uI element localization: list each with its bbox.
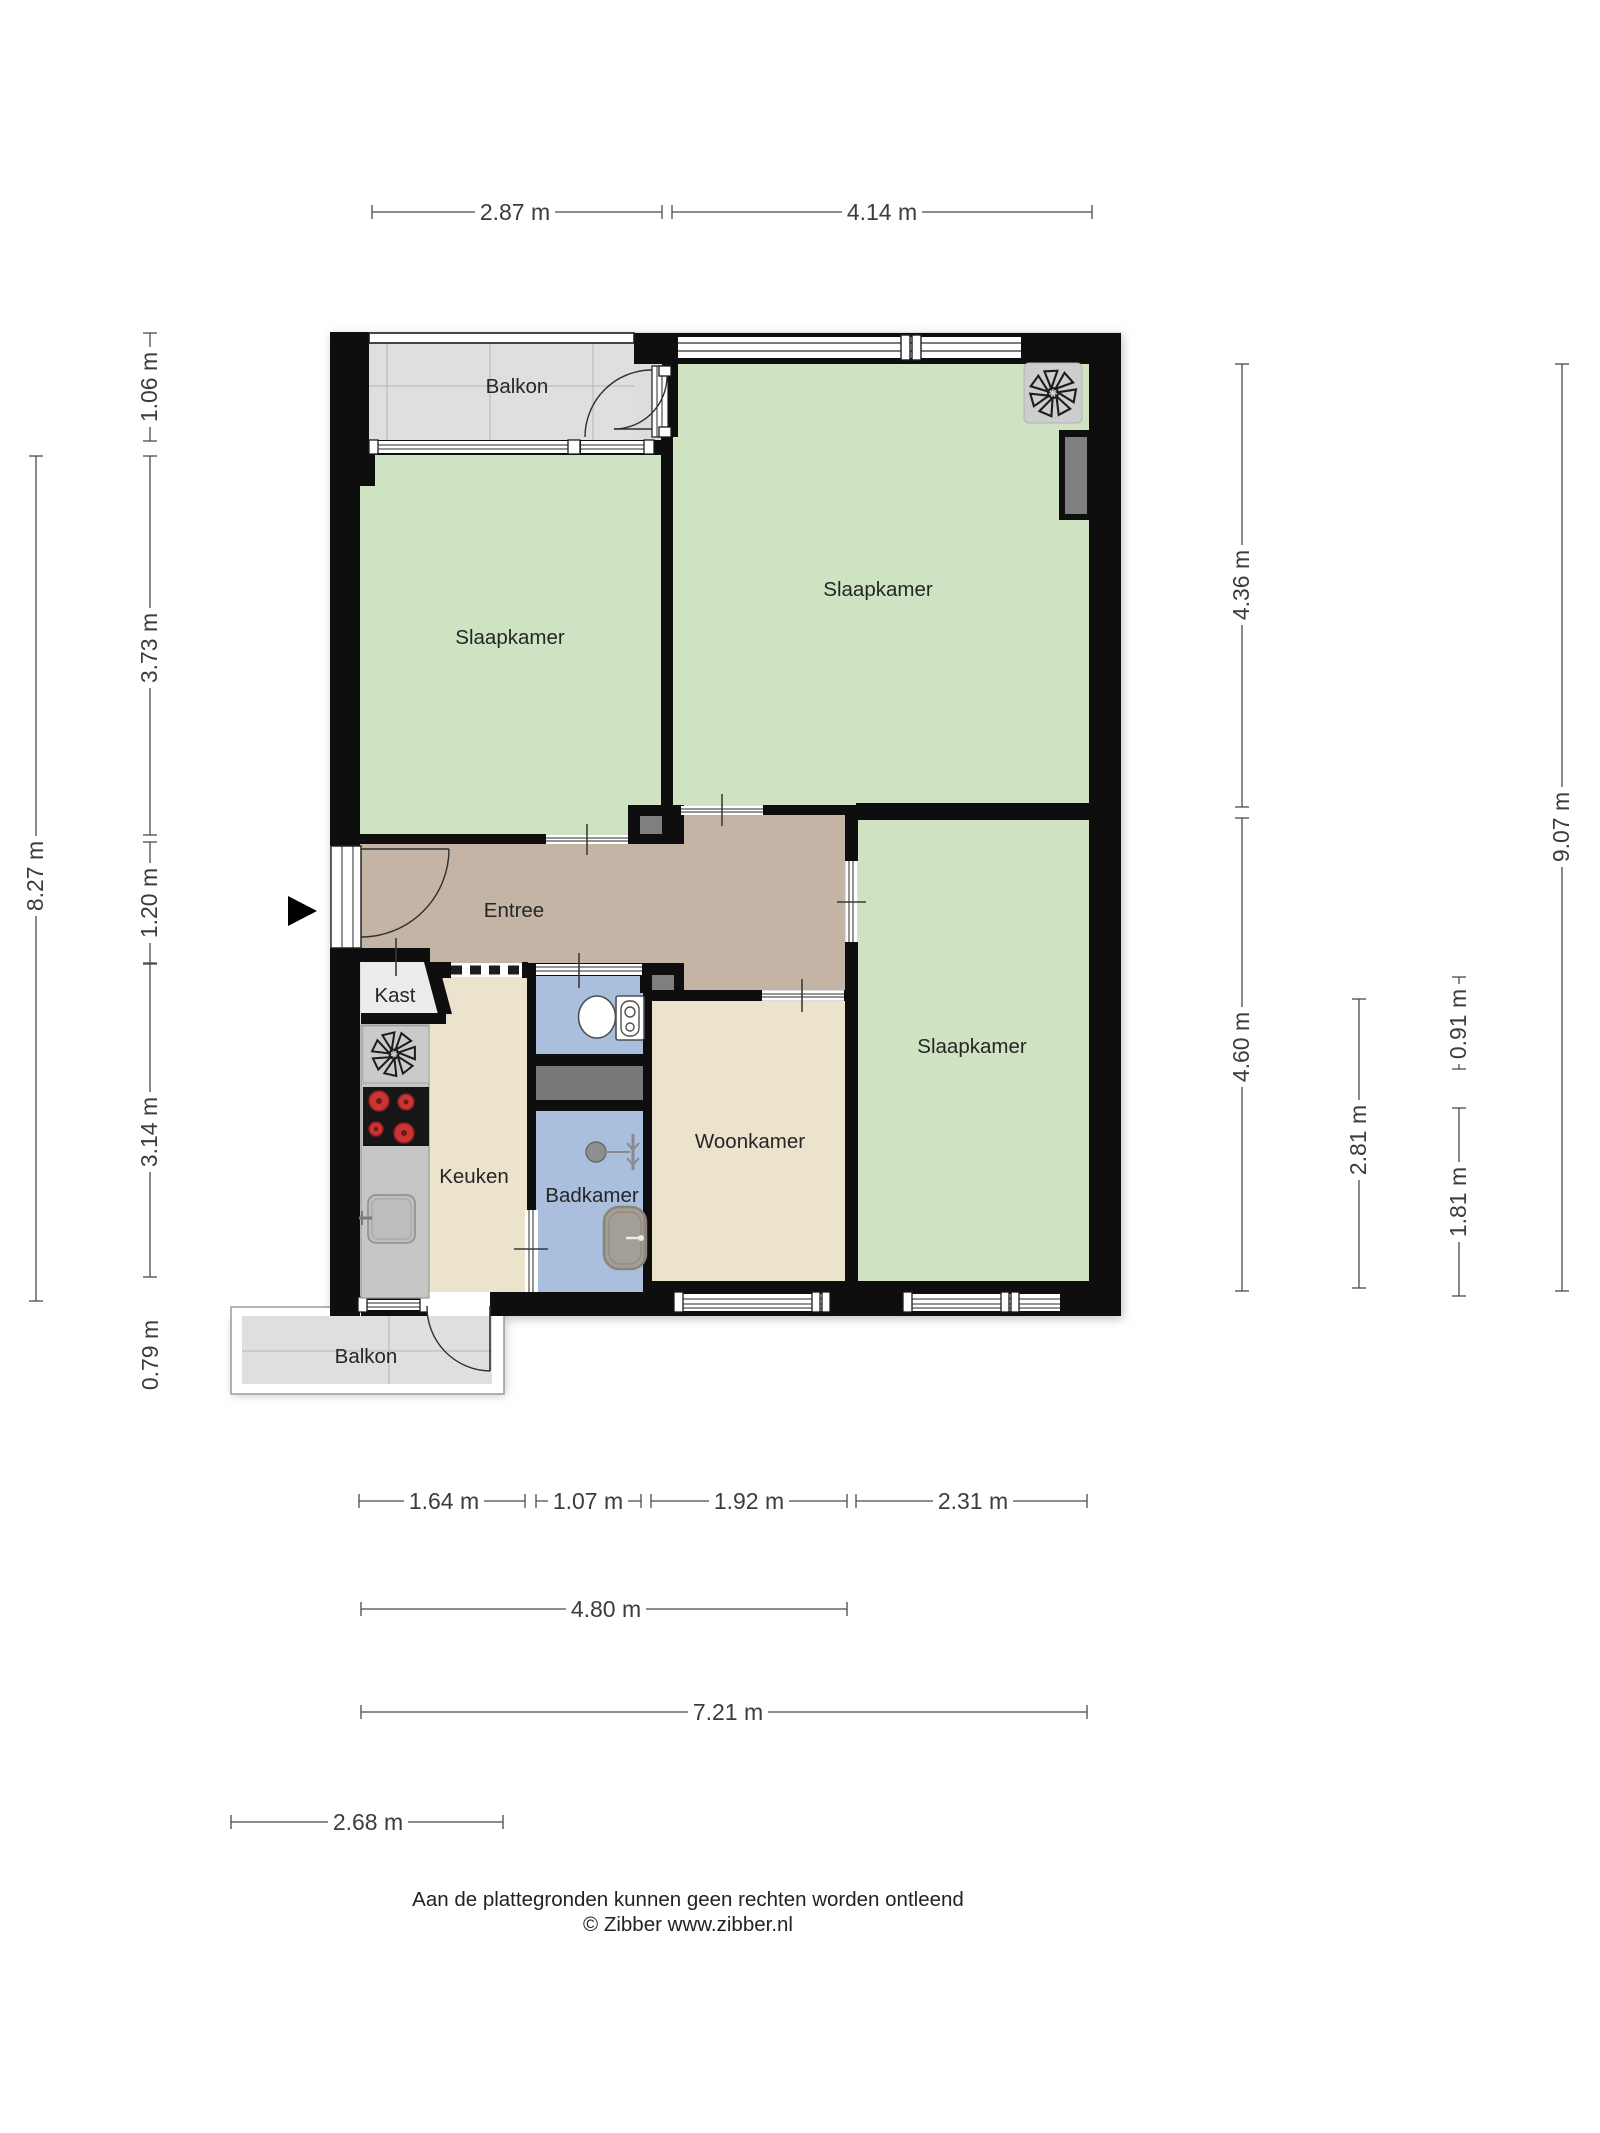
svg-text:4.14 m: 4.14 m	[847, 199, 917, 225]
svg-text:Slaapkamer: Slaapkamer	[455, 626, 565, 649]
svg-text:Slaapkamer: Slaapkamer	[917, 1035, 1027, 1058]
svg-text:3.73 m: 3.73 m	[136, 613, 162, 683]
svg-text:1.07 m: 1.07 m	[553, 1488, 623, 1514]
svg-text:1.92 m: 1.92 m	[714, 1488, 784, 1514]
svg-text:7.21 m: 7.21 m	[693, 1699, 763, 1725]
svg-text:Balkon: Balkon	[486, 375, 549, 398]
svg-text:1.06 m: 1.06 m	[136, 352, 162, 422]
svg-text:3.14 m: 3.14 m	[136, 1097, 162, 1167]
svg-text:Slaapkamer: Slaapkamer	[823, 578, 933, 601]
svg-text:1.64 m: 1.64 m	[409, 1488, 479, 1514]
svg-text:2.87 m: 2.87 m	[480, 199, 550, 225]
svg-text:Kast: Kast	[374, 984, 415, 1007]
svg-text:© Zibber www.zibber.nl: © Zibber www.zibber.nl	[583, 1913, 793, 1936]
svg-text:Aan de plattegronden kunnen ge: Aan de plattegronden kunnen geen rechten…	[412, 1888, 964, 1911]
svg-text:9.07 m: 9.07 m	[1548, 792, 1574, 862]
svg-text:Entree: Entree	[484, 899, 544, 922]
svg-text:0.79 m: 0.79 m	[137, 1320, 163, 1390]
svg-text:Keuken: Keuken	[439, 1165, 509, 1188]
svg-text:1.81 m: 1.81 m	[1445, 1167, 1471, 1237]
svg-text:0.91 m: 0.91 m	[1445, 989, 1471, 1059]
svg-text:Badkamer: Badkamer	[545, 1184, 639, 1207]
svg-text:4.60 m: 4.60 m	[1228, 1012, 1254, 1082]
svg-text:1.20 m: 1.20 m	[136, 868, 162, 938]
svg-text:Balkon: Balkon	[335, 1345, 398, 1368]
svg-text:2.68 m: 2.68 m	[333, 1809, 403, 1835]
svg-text:2.81 m: 2.81 m	[1345, 1105, 1371, 1175]
svg-text:Woonkamer: Woonkamer	[695, 1130, 805, 1153]
svg-text:2.31 m: 2.31 m	[938, 1488, 1008, 1514]
svg-text:4.36 m: 4.36 m	[1228, 550, 1254, 620]
svg-text:8.27 m: 8.27 m	[22, 841, 48, 911]
svg-text:4.80 m: 4.80 m	[571, 1596, 641, 1622]
